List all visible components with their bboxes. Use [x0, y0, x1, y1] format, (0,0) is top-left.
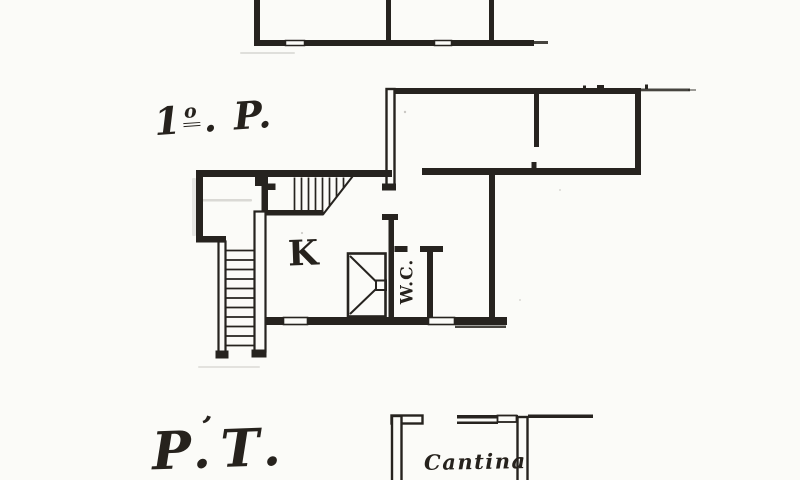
wall [489, 0, 494, 44]
floor-plan-sheet: 1o. P. P.T. ’ K W.C. Cantina [0, 0, 800, 480]
first-floor-label-suffix: . P. [202, 91, 275, 141]
stair-treads [226, 251, 255, 346]
wall-tick [597, 85, 604, 89]
wall [635, 88, 641, 172]
landing-walls [255, 177, 324, 216]
wall [532, 41, 548, 44]
stair-wall-foot [216, 351, 229, 359]
window-opening [498, 416, 517, 423]
staircase-lower-run [216, 212, 267, 359]
wall [489, 172, 495, 322]
wall [262, 187, 269, 213]
stair-wall [255, 212, 266, 352]
upper-floor-partial-plan [254, 0, 548, 46]
wall-cap [420, 246, 443, 252]
wall [196, 170, 392, 177]
wall-foot [382, 184, 396, 191]
first-floor-label: 1o. P. [153, 95, 274, 141]
wall [422, 168, 641, 175]
wall [196, 170, 203, 242]
plan-drawing [0, 0, 800, 480]
partition-wall [534, 94, 539, 147]
wall [457, 422, 498, 425]
wall-stub [395, 246, 408, 252]
kitchen-label: K [287, 235, 319, 271]
stair-wall [219, 242, 226, 353]
wall [254, 0, 260, 45]
wall [427, 252, 433, 318]
upper-right-rooms [386, 85, 696, 176]
wall-thin-extension [455, 326, 506, 329]
lower-left-section [196, 170, 507, 328]
door-jamb [532, 162, 537, 169]
stair-break-line [323, 177, 353, 215]
wall [389, 214, 395, 318]
wall [392, 416, 402, 480]
stair-wall-foot [252, 350, 267, 358]
wall [386, 0, 391, 44]
cellar-label: Cantina [424, 450, 527, 473]
wall [528, 415, 593, 419]
staircase-upper-run [295, 177, 353, 215]
wc-label: W.C. [400, 258, 417, 306]
ground-floor-label: P.T. [151, 422, 291, 479]
first-floor-label-ordinal: o [182, 100, 200, 127]
shower-tray [348, 254, 386, 317]
first-floor-label-number: 1 [153, 97, 185, 144]
terrace-edge-line [688, 89, 696, 91]
wall-tick [583, 86, 586, 90]
wall-tick [645, 85, 648, 90]
